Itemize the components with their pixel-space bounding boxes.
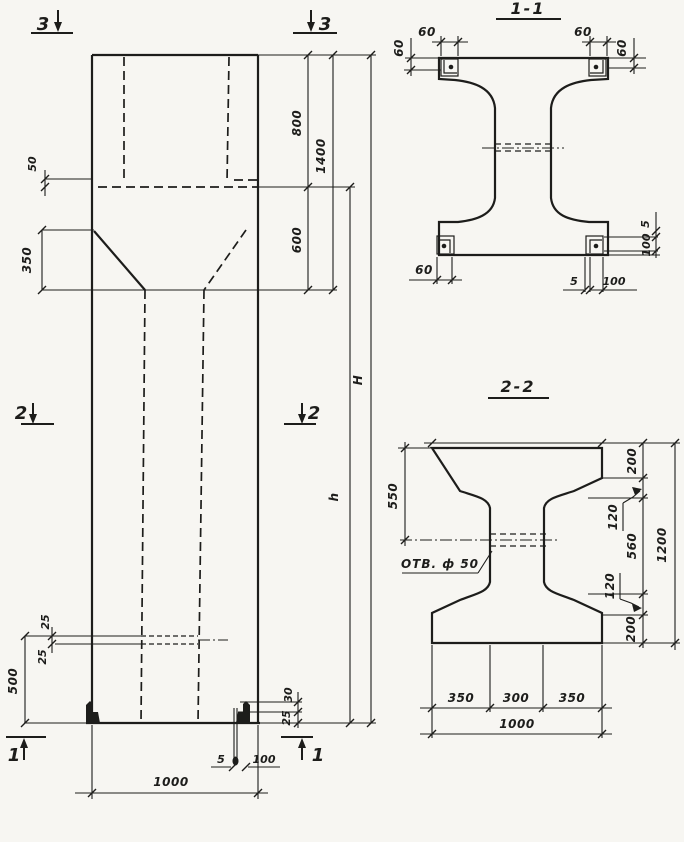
section-2-2-labels: 2-2 550 ОТВ. ф 50 200 120 560 120 200 12…: [386, 377, 669, 731]
elevation-slot-hidden: [141, 636, 198, 644]
s11-embed-plates: [437, 59, 606, 254]
dim-label-slot-25-lower: 25: [36, 649, 49, 665]
dim-label-1200: 1200: [655, 527, 669, 562]
section-marker-3-left: 3: [37, 14, 50, 35]
dim-label-300: 300: [503, 691, 530, 705]
dim-label-560: 560: [625, 533, 639, 560]
elevation-hidden-lines: [98, 57, 258, 723]
dim-label-total-H: H: [351, 375, 365, 386]
dim-label-550: 550: [386, 483, 400, 510]
dim-label-200-bottom: 200: [624, 616, 638, 643]
leader-arrow-icon: [632, 604, 642, 612]
section-marker-3-right: 3: [319, 14, 332, 35]
dim-label-foot-30: 30: [282, 687, 295, 703]
anchor-dot: [594, 244, 599, 249]
arrow-down-icon: [307, 22, 315, 32]
dim-label-taper-350: 350: [20, 247, 34, 274]
section-1-1-labels: 1-1 60 60 60 60 60 5 100 5 100: [392, 0, 653, 288]
column-drawing-canvas: 3 3 2 2 1 1 50 350 800 1400 600 H h 25 2…: [0, 0, 684, 842]
arrow-down-icon: [29, 414, 37, 424]
dim-label-200-top: 200: [625, 448, 639, 475]
dim-label-ledge-50: 50: [26, 156, 39, 172]
dim-label-shaft-h: h: [327, 492, 341, 501]
section-marker-1-left: 1: [8, 745, 21, 766]
dim-label-slot-25-upper: 25: [39, 614, 52, 630]
dim-label-s11-side-5: 5: [639, 220, 652, 228]
dim-label-plate-bl-60: 60: [415, 263, 433, 277]
right-foot: [236, 701, 250, 723]
dim-label-foot-5: 5: [217, 753, 225, 766]
dim-label-120-top: 120: [606, 504, 620, 531]
dim-label-plate-tr-height: 60: [615, 39, 629, 57]
dim-label-s11-side-100: 100: [640, 233, 653, 256]
dim-label-1000-bottom: 1000: [499, 717, 534, 731]
arrow-up-icon: [20, 738, 28, 748]
dim-label-plate-tl-width: 60: [418, 25, 436, 39]
section-1-1-view: [404, 19, 660, 294]
dim-label-350-right: 350: [559, 691, 586, 705]
section-marker-2-left: 2: [15, 403, 28, 424]
technical-drawing-sheet: 3 3 2 2 1 1 50 350 800 1400 600 H h 25 2…: [0, 0, 684, 842]
arrow-up-icon: [298, 738, 306, 748]
section-marker-2-right: 2: [308, 403, 321, 424]
s22-outline: [432, 448, 602, 643]
elevation-outline: [86, 55, 260, 723]
dim-label-head-800: 800: [290, 110, 304, 137]
elevation-labels: 3 3 2 2 1 1 50 350 800 1400 600 H h 25 2…: [6, 14, 365, 789]
dim-label-foot-100: 100: [253, 753, 276, 766]
s11-outline: [439, 58, 608, 255]
arrow-down-icon: [298, 414, 306, 424]
section-marker-1-right: 1: [312, 745, 325, 766]
dim-label-head-1400: 1400: [314, 138, 328, 173]
dim-label-base-500: 500: [6, 668, 20, 695]
anchor-dot: [449, 65, 454, 70]
dim-label-plate-tr-width: 60: [574, 25, 592, 39]
arrow-down-icon: [54, 22, 62, 32]
s22-extension-lines: [398, 442, 680, 738]
section-title-2-2: 2-2: [501, 377, 536, 396]
dim-label-s11-bottom-100: 100: [603, 275, 626, 288]
dim-label-width-1000: 1000: [153, 775, 188, 789]
dim-label-120-bottom: 120: [603, 573, 617, 600]
elevation-view: [6, 10, 376, 799]
dim-label-neck-600: 600: [290, 227, 304, 254]
dim-label-plate-tl-height: 60: [392, 39, 406, 57]
left-foot: [86, 701, 100, 723]
anchor-dot: [594, 65, 599, 70]
section-title-1-1: 1-1: [511, 0, 546, 18]
elevation-base-feet: [86, 701, 250, 766]
anchor-dot: [442, 244, 447, 249]
dim-label-s11-bottom-5: 5: [570, 275, 578, 288]
elevation-section-markers: [6, 10, 337, 760]
hole-callout: ОТВ. ф 50: [401, 557, 479, 571]
dim-label-350-left: 350: [448, 691, 475, 705]
s22-dim-ticks: [401, 439, 679, 738]
dim-label-foot-25: 25: [280, 710, 293, 726]
s22-web-hole-hidden: [490, 534, 546, 546]
